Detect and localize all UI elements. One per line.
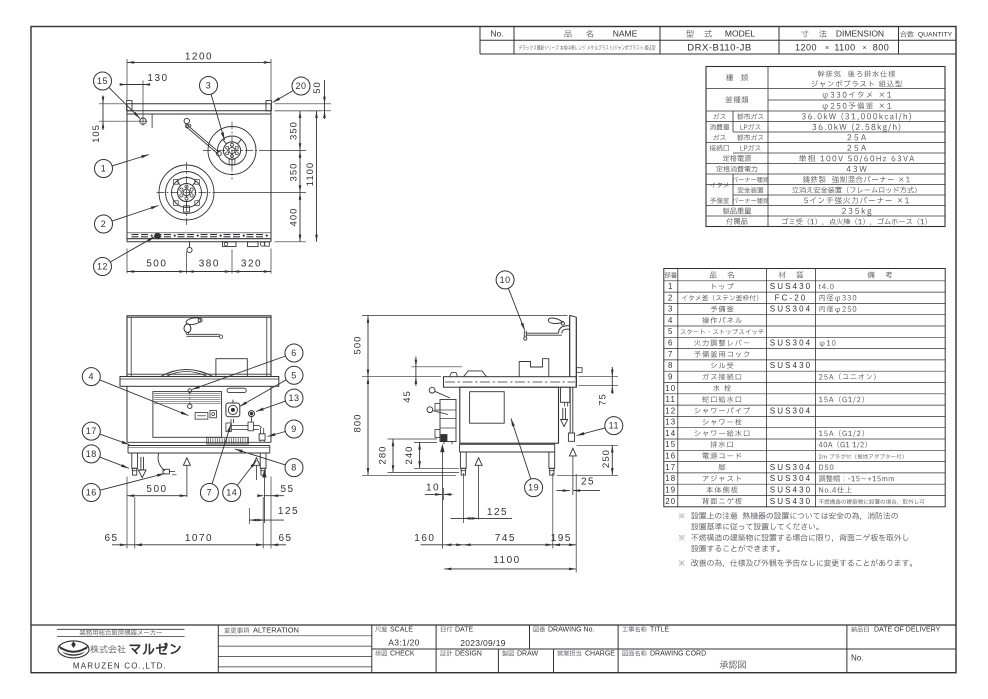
svg-text:20: 20 [295, 81, 306, 91]
svg-text:DESIGN: DESIGN [455, 650, 482, 657]
svg-text:SUS304: SUS304 [770, 463, 812, 472]
svg-text:ALTERATION: ALTERATION [253, 626, 299, 635]
svg-text:SUS304: SUS304 [770, 474, 812, 483]
svg-text:320: 320 [241, 258, 262, 269]
svg-text:65: 65 [104, 533, 118, 544]
svg-text:20: 20 [665, 497, 676, 506]
svg-text:No.: No. [851, 654, 863, 663]
svg-text:DRAW: DRAW [517, 650, 539, 657]
svg-text:CHARGE: CHARGE [585, 650, 615, 657]
svg-text:125: 125 [278, 506, 299, 517]
svg-text:2: 2 [668, 293, 674, 302]
svg-text:1: 1 [101, 164, 107, 174]
svg-text:1: 1 [668, 282, 674, 291]
svg-text:17: 17 [86, 426, 97, 436]
svg-text:1200: 1200 [185, 52, 213, 63]
svg-text:4: 4 [668, 316, 674, 325]
svg-text:250: 250 [601, 449, 612, 468]
svg-text:125: 125 [487, 507, 508, 518]
svg-text:SUS430: SUS430 [770, 486, 812, 495]
svg-text:A3:1/20: A3:1/20 [388, 638, 419, 648]
svg-text:16: 16 [665, 452, 676, 461]
svg-text:75: 75 [598, 393, 609, 406]
svg-text:1100: 1100 [834, 43, 855, 53]
svg-text:400: 400 [289, 208, 300, 227]
svg-text:500: 500 [353, 336, 364, 355]
svg-text:50: 50 [312, 81, 323, 94]
svg-text:7: 7 [207, 488, 213, 498]
svg-text:15: 15 [97, 76, 108, 86]
svg-text:105: 105 [91, 124, 102, 143]
svg-text:SCALE: SCALE [390, 626, 413, 633]
svg-text:15: 15 [665, 440, 676, 449]
svg-text:SUS304: SUS304 [770, 339, 812, 348]
svg-text:25: 25 [581, 477, 595, 488]
svg-text:No.: No. [490, 29, 503, 39]
svg-text:55: 55 [280, 484, 294, 495]
svg-text:11: 11 [666, 395, 677, 404]
svg-text:10: 10 [665, 384, 676, 393]
svg-text:18: 18 [665, 474, 676, 483]
svg-text:800: 800 [873, 43, 890, 53]
svg-text:SUS430: SUS430 [770, 497, 812, 506]
svg-text:9: 9 [291, 424, 297, 434]
svg-text:10: 10 [426, 483, 440, 494]
svg-text:2: 2 [101, 219, 107, 229]
svg-text:MARUZEN CO.,LTD.: MARUZEN CO.,LTD. [73, 661, 167, 670]
svg-text:745: 745 [495, 533, 516, 544]
svg-text:350: 350 [289, 121, 300, 140]
svg-text:12: 12 [97, 262, 108, 272]
svg-text:DRAWING No.: DRAWING No. [548, 626, 594, 633]
svg-text:1100: 1100 [493, 555, 521, 566]
svg-text:SUS430: SUS430 [770, 282, 812, 291]
svg-text:10: 10 [500, 275, 511, 285]
svg-text:1070: 1070 [185, 533, 213, 544]
svg-text:65: 65 [278, 533, 292, 544]
svg-text:45: 45 [402, 390, 413, 403]
svg-text:350: 350 [289, 163, 300, 182]
svg-text:160: 160 [414, 533, 435, 544]
svg-text:MODEL: MODEL [725, 29, 756, 39]
svg-text:3: 3 [668, 305, 674, 314]
svg-text:FC-20: FC-20 [775, 293, 808, 302]
svg-text:QUANTITY: QUANTITY [918, 32, 953, 39]
svg-text:DIMENSION: DIMENSION [836, 29, 884, 39]
svg-text:16: 16 [86, 488, 97, 498]
svg-text:195: 195 [551, 533, 572, 544]
svg-text:19: 19 [528, 483, 539, 493]
svg-text:19: 19 [665, 486, 676, 495]
svg-text:800: 800 [353, 414, 364, 433]
svg-text:2023/09/19: 2023/09/19 [460, 638, 506, 648]
svg-text:8: 8 [291, 463, 297, 473]
svg-text:11: 11 [609, 421, 619, 431]
svg-text:5: 5 [668, 327, 674, 336]
svg-text:SUS430: SUS430 [770, 361, 812, 370]
svg-text:9: 9 [668, 373, 674, 382]
svg-text:×: × [825, 45, 829, 52]
svg-text:6: 6 [291, 348, 297, 358]
svg-text:1200: 1200 [795, 43, 817, 53]
svg-text:7: 7 [668, 350, 674, 359]
svg-text:1100: 1100 [305, 162, 316, 186]
svg-text:DRAWING CORD: DRAWING CORD [650, 650, 706, 657]
svg-text:TITLE: TITLE [650, 626, 669, 633]
svg-text:240: 240 [404, 446, 415, 465]
svg-text:380: 380 [199, 258, 220, 269]
svg-text:14: 14 [665, 429, 676, 438]
svg-text:8: 8 [668, 361, 674, 370]
svg-text:CHECK: CHECK [390, 650, 415, 657]
svg-text:6: 6 [668, 339, 674, 348]
svg-text:13: 13 [665, 418, 676, 427]
svg-text:DATE OF DELIVERY: DATE OF DELIVERY [874, 626, 941, 633]
svg-text:DRX-B110-JB: DRX-B110-JB [687, 43, 751, 54]
svg-text:500: 500 [146, 484, 167, 495]
svg-text:12: 12 [665, 406, 676, 415]
svg-text:18: 18 [86, 449, 97, 459]
svg-text:NAME: NAME [613, 29, 638, 39]
svg-text:4: 4 [89, 372, 95, 382]
svg-text:SUS304: SUS304 [770, 305, 812, 314]
svg-text:130: 130 [147, 73, 168, 84]
svg-text:13: 13 [288, 393, 299, 403]
svg-text:500: 500 [146, 258, 167, 269]
svg-text:×: × [862, 45, 866, 52]
svg-text:14: 14 [226, 488, 237, 498]
svg-text:280: 280 [378, 446, 389, 465]
svg-text:17: 17 [665, 463, 676, 472]
svg-text:DATE: DATE [455, 626, 473, 633]
svg-text:SUS304: SUS304 [770, 406, 812, 415]
svg-text:5: 5 [291, 370, 297, 380]
svg-text:3: 3 [206, 81, 212, 91]
